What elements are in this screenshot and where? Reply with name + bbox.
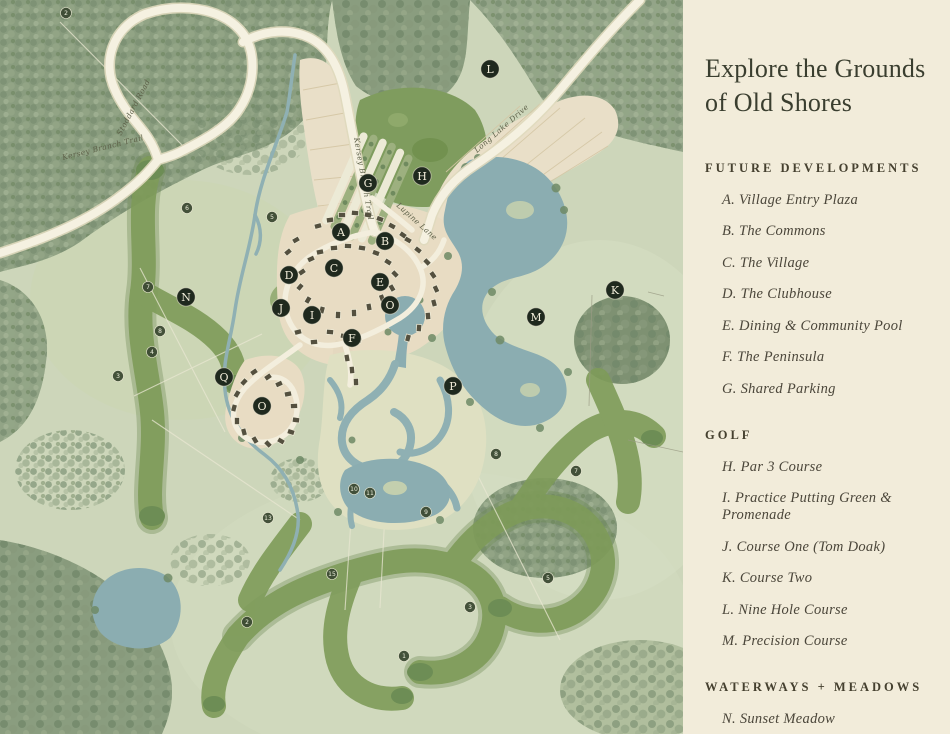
legend-panel: Explore the Grounds of Old Shores FUTURE… — [683, 0, 950, 734]
svg-text:C: C — [330, 262, 338, 275]
svg-text:N: N — [181, 291, 191, 304]
marker-L[interactable]: L — [481, 60, 499, 78]
marker-M[interactable]: M — [527, 308, 545, 326]
explore-grounds-page: Kersey Branch TrailStoddard RoadKersey B… — [0, 0, 950, 734]
marker-E[interactable]: E — [371, 273, 389, 291]
marker-O[interactable]: O — [381, 296, 399, 314]
marker-F[interactable]: F — [343, 329, 361, 347]
hole-number: 5 — [270, 214, 274, 221]
svg-text:O: O — [385, 299, 394, 312]
hole-number: 3 — [116, 373, 120, 380]
hole-number: 8 — [494, 451, 498, 458]
hole-number: 8 — [158, 328, 162, 335]
hole-number: 15 — [328, 571, 336, 578]
legend-item-l[interactable]: L. Nine Hole Course — [722, 602, 926, 619]
legend-sections: FUTURE DEVELOPMENTSA. Village Entry Plaz… — [705, 161, 926, 734]
svg-text:E: E — [376, 276, 384, 289]
hole-number: 6 — [185, 205, 189, 212]
legend-item-m[interactable]: M. Precision Course — [722, 633, 926, 650]
svg-text:I: I — [310, 309, 314, 322]
marker-H[interactable]: H — [413, 167, 431, 185]
hole-number: 2 — [245, 619, 249, 626]
svg-text:J: J — [278, 302, 283, 315]
page-title-line2: of Old Shores — [705, 86, 926, 120]
svg-text:G: G — [364, 177, 373, 190]
svg-text:M: M — [530, 311, 541, 324]
svg-text:Q: Q — [219, 371, 228, 384]
hole-number: 2 — [64, 10, 68, 17]
marker-O[interactable]: O — [253, 397, 271, 415]
legend-item-k[interactable]: K. Course Two — [722, 570, 926, 587]
legend-item-e[interactable]: E. Dining & Community Pool — [722, 318, 926, 335]
map-panel: Kersey Branch TrailStoddard RoadKersey B… — [0, 0, 683, 734]
hole-number: 1 — [402, 653, 406, 660]
legend-item-g[interactable]: G. Shared Parking — [722, 381, 926, 398]
legend-section-heading: GOLF — [705, 428, 926, 443]
hole-number: 11 — [366, 490, 374, 497]
legend-item-i[interactable]: I. Practice Putting Green & Promenade — [722, 490, 926, 524]
legend-item-j[interactable]: J. Course One (Tom Doak) — [722, 539, 926, 556]
page-title: Explore the Grounds of Old Shores — [705, 52, 926, 121]
legend-section-heading: WATERWAYS + MEADOWS — [705, 680, 926, 695]
legend-item-f[interactable]: F. The Peninsula — [722, 349, 926, 366]
marker-C[interactable]: C — [325, 259, 343, 277]
legend-item-h[interactable]: H. Par 3 Course — [722, 459, 926, 476]
hole-number: 4 — [150, 349, 154, 356]
marker-J[interactable]: J — [272, 299, 290, 317]
hole-number: 5 — [546, 575, 550, 582]
legend-item-n[interactable]: N. Sunset Meadow — [722, 711, 926, 728]
hole-number: 7 — [146, 284, 150, 291]
hole-number: 7 — [574, 468, 578, 475]
svg-text:P: P — [449, 380, 457, 393]
svg-text:K: K — [611, 284, 620, 297]
hole-number: 3 — [468, 604, 472, 611]
marker-G[interactable]: G — [359, 174, 377, 192]
legend-item-a[interactable]: A. Village Entry Plaza — [722, 192, 926, 209]
legend-item-b[interactable]: B. The Commons — [722, 223, 926, 240]
marker-K[interactable]: K — [606, 281, 624, 299]
marker-B[interactable]: B — [376, 232, 394, 250]
marker-I[interactable]: I — [303, 306, 321, 324]
marker-D[interactable]: D — [280, 266, 298, 284]
svg-text:L: L — [486, 63, 494, 76]
hole-number: 13 — [264, 515, 272, 522]
svg-text:D: D — [285, 269, 294, 282]
page-title-line1: Explore the Grounds — [705, 52, 926, 86]
svg-text:A: A — [336, 226, 346, 239]
svg-text:F: F — [348, 332, 356, 345]
marker-N[interactable]: N — [177, 288, 195, 306]
legend-item-d[interactable]: D. The Clubhouse — [722, 286, 926, 303]
legend-section-heading: FUTURE DEVELOPMENTS — [705, 161, 926, 176]
marker-Q[interactable]: Q — [215, 368, 233, 386]
legend-item-c[interactable]: C. The Village — [722, 255, 926, 272]
hole-number: 10 — [350, 486, 358, 493]
svg-text:B: B — [381, 235, 389, 248]
hole-number: 9 — [424, 509, 428, 516]
svg-text:H: H — [417, 170, 427, 183]
map-illustration: Kersey Branch TrailStoddard RoadKersey B… — [0, 0, 683, 734]
svg-text:O: O — [257, 400, 266, 413]
marker-A[interactable]: A — [332, 223, 350, 241]
marker-P[interactable]: P — [444, 377, 462, 395]
